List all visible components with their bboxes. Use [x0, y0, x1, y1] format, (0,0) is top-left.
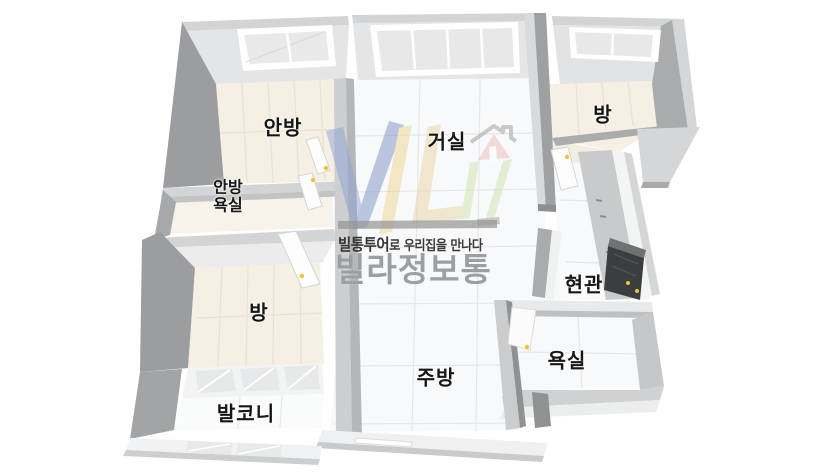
room-label-bedroom-bottom-left: 방: [249, 302, 268, 325]
door-handle: [635, 289, 639, 293]
wall-balcony-left: [130, 369, 182, 439]
room-label-bathroom: 욕실: [548, 350, 587, 373]
logo-house-door: [489, 146, 497, 163]
bedroom-top-right-window: [569, 27, 661, 62]
door-handle: [311, 178, 315, 182]
room-label-master-bathroom-line1: 안방: [213, 178, 242, 197]
floorplan-page: 빌통투어로 우리집을 만나다 빌라정보통 안방 안방욕실 거실 방 현관 욕실 …: [0, 0, 840, 472]
balcony-divider-window: [182, 363, 324, 398]
room-label-balcony: 발코니: [217, 403, 275, 426]
watermark-divider-bar: [338, 220, 497, 229]
wall-living-right-cap: [538, 204, 556, 212]
wall-protrusion-edge: [641, 182, 670, 188]
room-label-master-bathroom: 안방욕실: [213, 179, 242, 216]
room-label-bedroom-top-right: 방: [593, 104, 612, 127]
door-handle: [324, 166, 328, 170]
room-label-entrance: 현관: [565, 274, 604, 297]
wall-protrusion-top: [637, 127, 700, 182]
living-room-window: [370, 22, 520, 77]
door-handle: [525, 345, 529, 349]
door-handle: [565, 155, 569, 159]
master-bedroom-window: [237, 25, 336, 71]
room-label-living-room: 거실: [428, 131, 467, 154]
door-handle: [626, 281, 630, 285]
room-label-master-bedroom: 안방: [264, 117, 303, 140]
room-label-master-bathroom-line2: 욕실: [213, 196, 242, 215]
door-handle: [300, 274, 304, 278]
watermark-brand-name: 빌라정보통: [335, 253, 492, 286]
wall-kitchen-right-stub: [532, 392, 551, 428]
room-label-kitchen: 주방: [417, 367, 456, 390]
